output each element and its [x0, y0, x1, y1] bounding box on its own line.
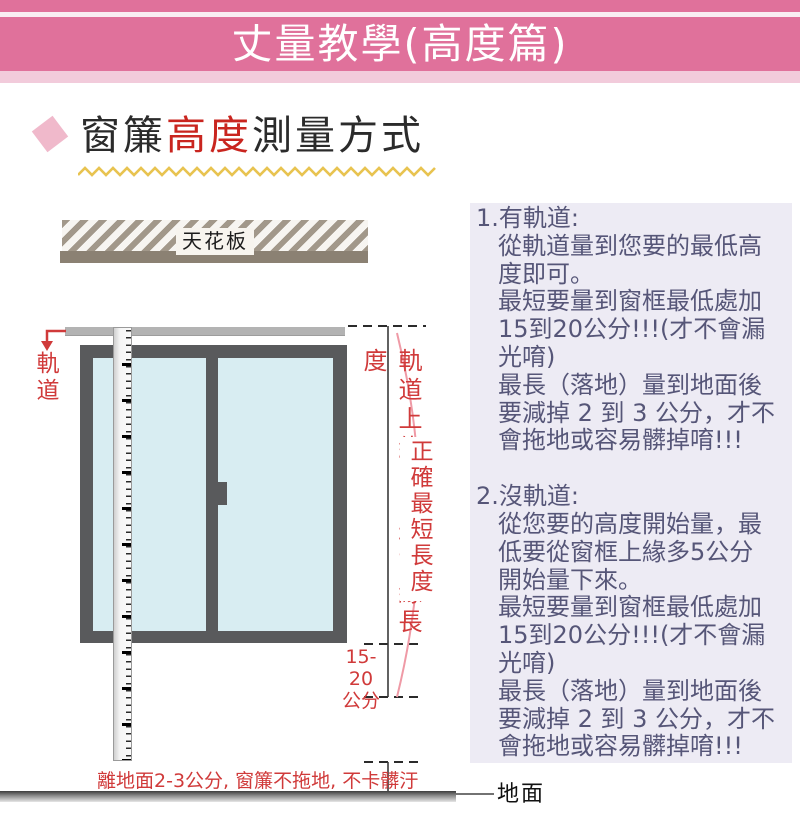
instruction-section-no-track: 2.沒軌道: 從您要的高度開始量，最 低要從窗框上緣多5公分 開始量下來。 最短…	[476, 483, 786, 761]
section-heading: 2.沒軌道:	[476, 483, 786, 511]
instruction-line: 從軌道量到您要的最低高	[476, 233, 786, 261]
page-title-highlight: 高度	[166, 113, 252, 159]
instruction-line: 最長（落地）量到地面後	[476, 372, 786, 400]
top-stripe	[0, 0, 800, 12]
instruction-line: 15到20公分!!!(才不會漏	[476, 316, 786, 344]
instruction-line: 從您要的高度開始量，最	[476, 511, 786, 539]
instruction-line: 要減掉 2 到 3 公分，才不	[476, 706, 786, 734]
instruction-line: 15到20公分!!!(才不會漏	[476, 622, 786, 650]
ground-label: 地面	[497, 776, 545, 808]
track-label: 軌道	[34, 351, 62, 407]
window-handle	[212, 482, 227, 505]
floor-clearance-note: 離地面2-3公分, 窗簾不拖地, 不卡髒汙	[97, 766, 397, 793]
ground-bar	[0, 791, 456, 802]
track-arrow	[47, 331, 66, 341]
infographic-canvas: 丈量教學(高度篇) 窗簾高度測量方式 天花板 軌道 軌道上緣到窗框下緣長度 正	[0, 0, 800, 840]
zigzag-underline	[78, 165, 436, 178]
instruction-line: 度即可。	[476, 261, 786, 289]
diamond-bullet-icon	[32, 116, 68, 152]
gap-distance-value: 15-20	[334, 646, 388, 690]
track-arrowhead-icon	[41, 341, 53, 351]
page-title-part1: 窗簾	[80, 113, 166, 159]
instruction-line: 光唷)	[476, 344, 786, 372]
instruction-line: 最長（落地）量到地面後	[476, 678, 786, 706]
instruction-line: 低要從窗框上緣多5公分	[476, 539, 786, 567]
gap-distance-unit: 公分	[334, 690, 388, 712]
banner-bottom-stripe	[0, 71, 800, 83]
section-heading: 1.有軌道:	[476, 205, 786, 233]
page-title: 窗簾高度測量方式	[80, 110, 500, 162]
instruction-line: 最短要量到窗框最低處加	[476, 594, 786, 622]
measure-right-label: 正確最短長度	[400, 437, 438, 601]
window-pane-right	[218, 358, 333, 631]
instruction-line: 最短要量到窗框最低處加	[476, 288, 786, 316]
page-title-part2: 測量方式	[252, 113, 424, 159]
instructions-panel: 1.有軌道: 從軌道量到您要的最低高 度即可。 最短要量到窗框最低處加 15到2…	[470, 203, 792, 763]
curtain-track	[65, 327, 345, 336]
instruction-line: 光唷)	[476, 650, 786, 678]
measuring-ruler	[113, 327, 132, 761]
instruction-line: 開始量下來。	[476, 567, 786, 595]
banner-title: 丈量教學(高度篇)	[0, 17, 800, 71]
instruction-section-with-track: 1.有軌道: 從軌道量到您要的最低高 度即可。 最短要量到窗框最低處加 15到2…	[476, 205, 786, 455]
instruction-line: 要減掉 2 到 3 公分，才不	[476, 400, 786, 428]
instruction-line: 會拖地或容易髒掉唷!!!	[476, 427, 786, 455]
window-pane-left	[93, 358, 206, 631]
ceiling-label: 天花板	[176, 228, 254, 255]
instruction-line: 會拖地或容易髒掉唷!!!	[476, 733, 786, 761]
gap-distance-label: 15-20 公分	[334, 646, 388, 712]
